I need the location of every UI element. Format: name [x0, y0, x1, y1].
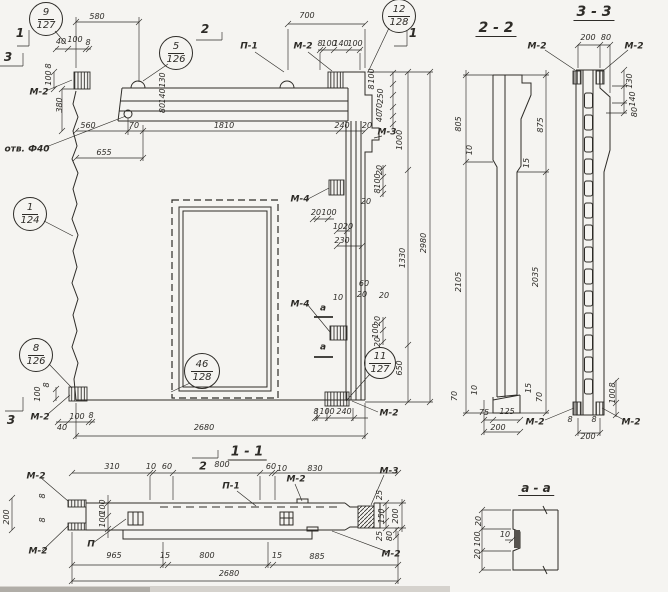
- right-rib: [346, 88, 361, 400]
- section-3-3-leaders: [545, 50, 628, 420]
- embed-m4-upper: [329, 180, 344, 195]
- section-3-3-voids: [585, 93, 593, 394]
- embed-m2-33-topleft: [573, 71, 581, 84]
- section-2-2-profile: [493, 75, 531, 413]
- main-dim-lines: [54, 17, 433, 439]
- panel-left-rough-edge: [72, 91, 78, 400]
- embed-m3-11-right: [358, 506, 374, 528]
- drawing-linework: [0, 0, 668, 592]
- embed-m4-lower: [330, 326, 347, 340]
- section-a-a-key: [514, 530, 520, 548]
- embed-m2-33-bottomleft: [573, 402, 581, 415]
- embed-m2-bottomright: [325, 392, 349, 406]
- scan-artifact-dark: [0, 587, 150, 592]
- section-3-3-dims: [578, 45, 627, 436]
- section-1-1-leaders: [40, 475, 388, 552]
- section-1-1-profile: [86, 503, 380, 539]
- main-dim-ticks: [51, 19, 433, 439]
- embed-m2-33-topright: [596, 71, 604, 84]
- opening-frame-inner: [183, 211, 267, 387]
- embed-m2-topleft: [74, 72, 90, 89]
- drawing-sheet: 1321321 - 12 - 23 - 3a - a5804010088100М…: [0, 0, 668, 592]
- section-2-2-dims: [463, 70, 549, 435]
- section-2-2-ticks: [463, 72, 549, 435]
- opening-outline-dashed: [172, 200, 278, 398]
- opening-frame-mid: [179, 207, 271, 391]
- embed-m2-11-topleft: [68, 500, 86, 507]
- section-a-a-dims: [482, 510, 513, 570]
- lifting-loops: [131, 81, 294, 88]
- top-beam: [118, 88, 348, 121]
- embed-m2-topright: [328, 72, 343, 88]
- embed-m2-11-bottomleft: [68, 523, 86, 530]
- section-1-1-square-1: [128, 512, 143, 525]
- embed-m2-bottomleft: [69, 387, 87, 401]
- section-1-1-notch-top: [297, 499, 308, 503]
